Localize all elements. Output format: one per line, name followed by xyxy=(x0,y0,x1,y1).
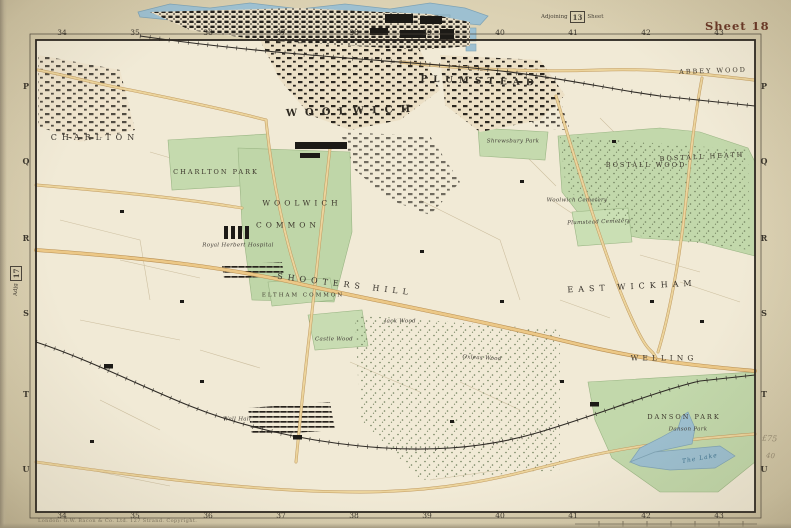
grid-number: 37 xyxy=(270,28,292,37)
grid-letter: U xyxy=(20,464,32,474)
adjoining-suffix: Sheet xyxy=(587,14,603,20)
adjoining-sheet-number: 17 xyxy=(10,266,22,282)
adjoining-prefix: Adjoining xyxy=(541,14,568,20)
railway-station xyxy=(104,364,113,369)
grid-letter: T xyxy=(758,389,770,399)
adjoining-prefix: Adjg xyxy=(13,283,19,296)
herbert-hospital xyxy=(224,226,228,239)
adjoining-sheet-number: 13 xyxy=(570,11,586,23)
pencil-note: £75 xyxy=(762,433,778,443)
well-hall-terraces xyxy=(248,402,335,436)
grid-letter: S xyxy=(20,308,32,318)
shrewsbury-park-green xyxy=(478,128,548,160)
scanned-map-page: Sheet 18 Adjoining 13 Sheet Adjg 17 34 3… xyxy=(0,0,791,528)
grid-number: 41 xyxy=(562,28,584,37)
grid-letter: P xyxy=(20,81,32,91)
grid-number: 43 xyxy=(708,28,730,37)
grid-number: 41 xyxy=(562,511,584,520)
page-edge xyxy=(0,0,7,528)
grid-number: 38 xyxy=(343,511,365,520)
railway-station xyxy=(293,435,302,440)
grid-letter: Q xyxy=(20,156,32,166)
grid-number: 39 xyxy=(416,28,438,37)
artillery-barracks xyxy=(295,142,347,149)
adjoining-sheet-marker-left: Adjg 17 xyxy=(10,272,22,296)
railway-station xyxy=(590,402,599,407)
grid-number: 40 xyxy=(489,28,511,37)
grid-number: 37 xyxy=(270,511,292,520)
page-edge xyxy=(0,523,791,528)
grid-number: 36 xyxy=(197,28,219,37)
grid-letter: T xyxy=(20,389,32,399)
grid-letter: R xyxy=(20,233,32,243)
grid-letter: Q xyxy=(758,156,770,166)
grid-number: 38 xyxy=(343,28,365,37)
grid-letter: S xyxy=(758,308,770,318)
pencil-note: 40 xyxy=(766,452,775,461)
grid-number: 35 xyxy=(124,28,146,37)
grid-letter: P xyxy=(758,81,770,91)
grid-number: 39 xyxy=(416,511,438,520)
grid-number: 42 xyxy=(635,28,657,37)
grid-number: 40 xyxy=(489,511,511,520)
grid-number: 36 xyxy=(197,511,219,520)
grid-number: 34 xyxy=(51,28,73,37)
grid-letter: U xyxy=(758,464,770,474)
grid-letter: R xyxy=(758,233,770,243)
adjoining-sheet-marker-top: Adjoining 13 Sheet xyxy=(541,11,603,23)
map-artwork xyxy=(0,0,791,528)
grid-number: 42 xyxy=(635,511,657,520)
grid-number: 43 xyxy=(708,511,730,520)
woolwich-common-green xyxy=(238,148,352,302)
